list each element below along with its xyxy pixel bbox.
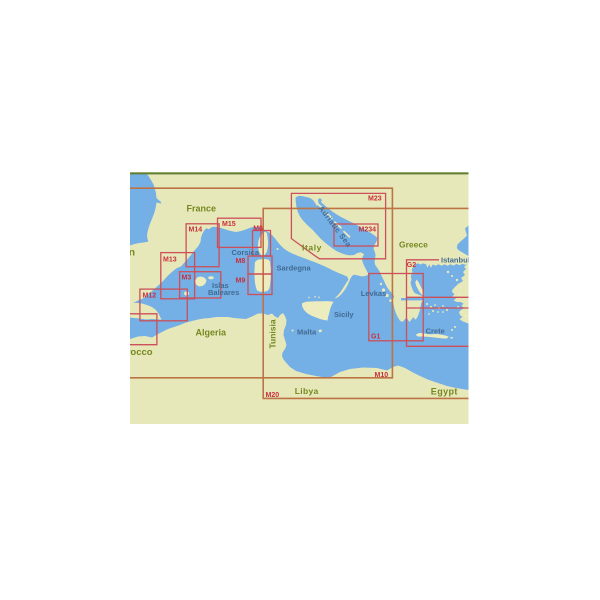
svg-text:Egypt: Egypt xyxy=(431,386,458,396)
svg-text:M6: M6 xyxy=(253,225,263,232)
svg-text:M13: M13 xyxy=(163,256,177,263)
svg-text:Levkas: Levkas xyxy=(361,289,386,298)
svg-text:Italy: Italy xyxy=(302,242,322,252)
svg-text:M3: M3 xyxy=(182,275,192,282)
svg-text:M20: M20 xyxy=(266,392,280,399)
svg-text:G2: G2 xyxy=(407,262,416,269)
svg-text:M10: M10 xyxy=(375,372,389,379)
svg-text:Istanbul: Istanbul xyxy=(441,255,470,264)
svg-text:Greece: Greece xyxy=(399,240,428,250)
svg-text:M8: M8 xyxy=(236,258,246,265)
svg-text:M12: M12 xyxy=(143,292,157,299)
svg-text:Sardegna: Sardegna xyxy=(277,264,312,273)
svg-text:Tunisia: Tunisia xyxy=(268,319,278,348)
svg-text:G1: G1 xyxy=(371,334,380,341)
svg-text:Sicily: Sicily xyxy=(334,310,354,319)
svg-text:Algeria: Algeria xyxy=(196,327,228,337)
svg-text:France: France xyxy=(187,204,217,214)
svg-text:M23: M23 xyxy=(368,195,382,202)
svg-text:Malta: Malta xyxy=(297,327,317,336)
svg-text:M14: M14 xyxy=(189,226,203,233)
svg-text:M15: M15 xyxy=(222,221,236,228)
svg-text:Libya: Libya xyxy=(295,386,319,396)
svg-text:M9: M9 xyxy=(236,278,246,285)
svg-text:M234: M234 xyxy=(359,227,377,234)
svg-text:Baleares: Baleares xyxy=(208,288,239,297)
svg-text:Corsica: Corsica xyxy=(232,248,260,257)
svg-text:Crete: Crete xyxy=(426,327,445,336)
